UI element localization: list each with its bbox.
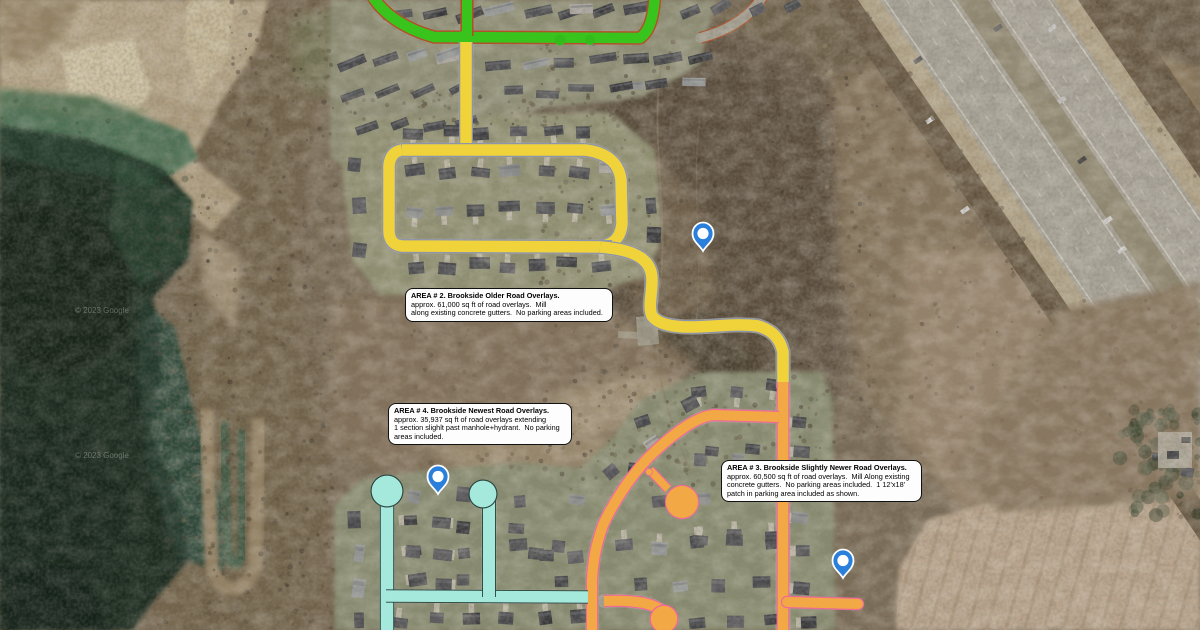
svg-text:© 2023 Google: © 2023 Google	[75, 451, 129, 460]
svg-text:© 2023 Google: © 2023 Google	[75, 306, 129, 315]
